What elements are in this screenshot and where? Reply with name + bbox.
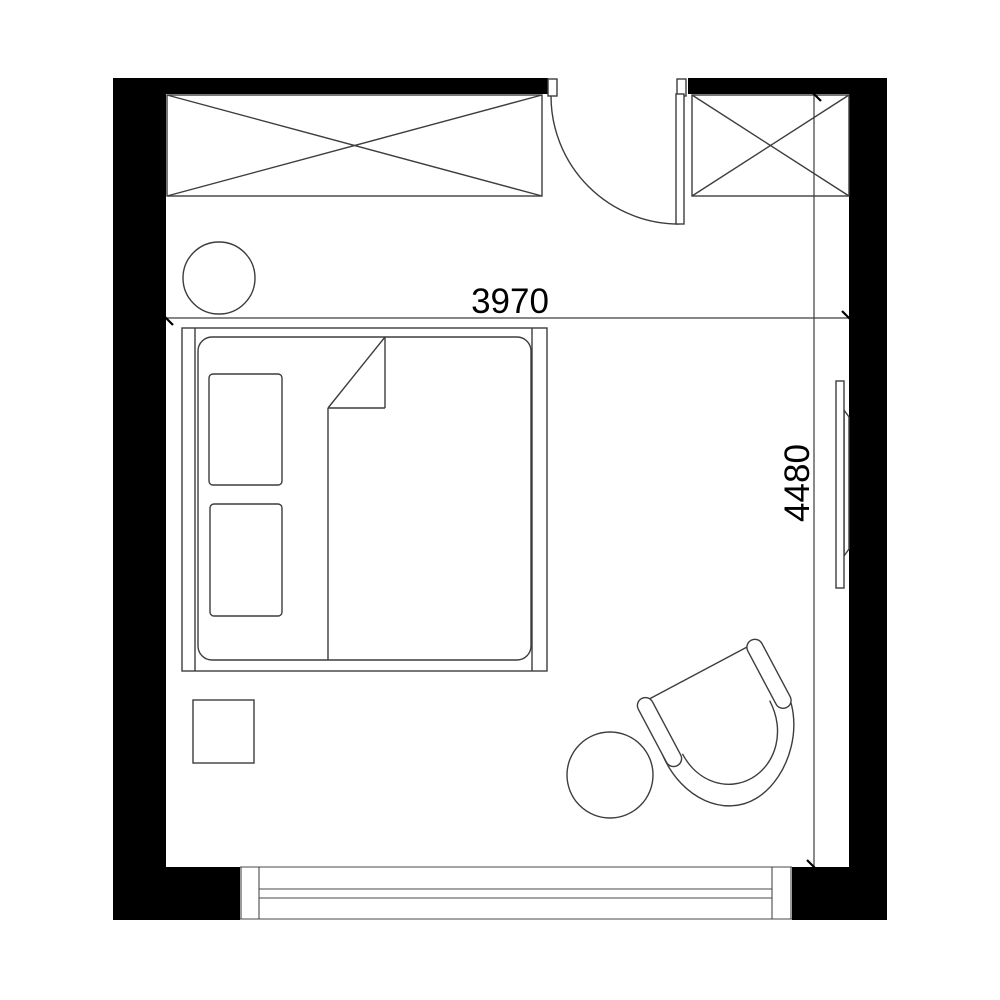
dimension-width: 3970 [159,282,856,325]
pillow-bottom [210,504,282,616]
door-jamb-left [548,79,557,96]
wall-top-left-segment [113,78,548,94]
duvet-fold-diagonal [328,337,385,408]
bed-frame [182,328,547,671]
window-bottom [240,867,792,919]
armchair [634,637,825,828]
tv-mount-bracket [844,410,849,556]
tv-panel [836,381,844,588]
wardrobe [167,95,542,196]
wall-left [113,78,166,920]
armchair-armrest-right [744,637,794,712]
duvet-fold [328,337,385,660]
walls [113,78,887,920]
wall-right [849,78,887,920]
floor-plan-svg: 3970 4480 [0,0,1000,1000]
dimension-height-label: 4480 [778,444,817,522]
door-leaf [676,94,684,224]
armchair-seat-front [650,647,747,699]
dimension-width-label: 3970 [471,282,549,321]
floor-plan-page: 3970 4480 [0,0,1000,1000]
door [548,79,686,224]
nightstand [193,700,254,763]
closet [692,95,849,196]
wall-bottom-right-corner [792,867,887,920]
bed [182,328,547,671]
dimension-height: 4480 [778,87,821,874]
stool-circle [183,242,255,314]
armchair-armrest-left [635,695,685,770]
armchair-back-inner [680,701,798,802]
pillow-top [209,374,282,485]
mattress [198,337,531,660]
wall-tv [836,381,849,588]
door-swing-arc [551,96,679,224]
side-table-circle [567,732,653,818]
wall-bottom-left-corner [113,867,240,920]
